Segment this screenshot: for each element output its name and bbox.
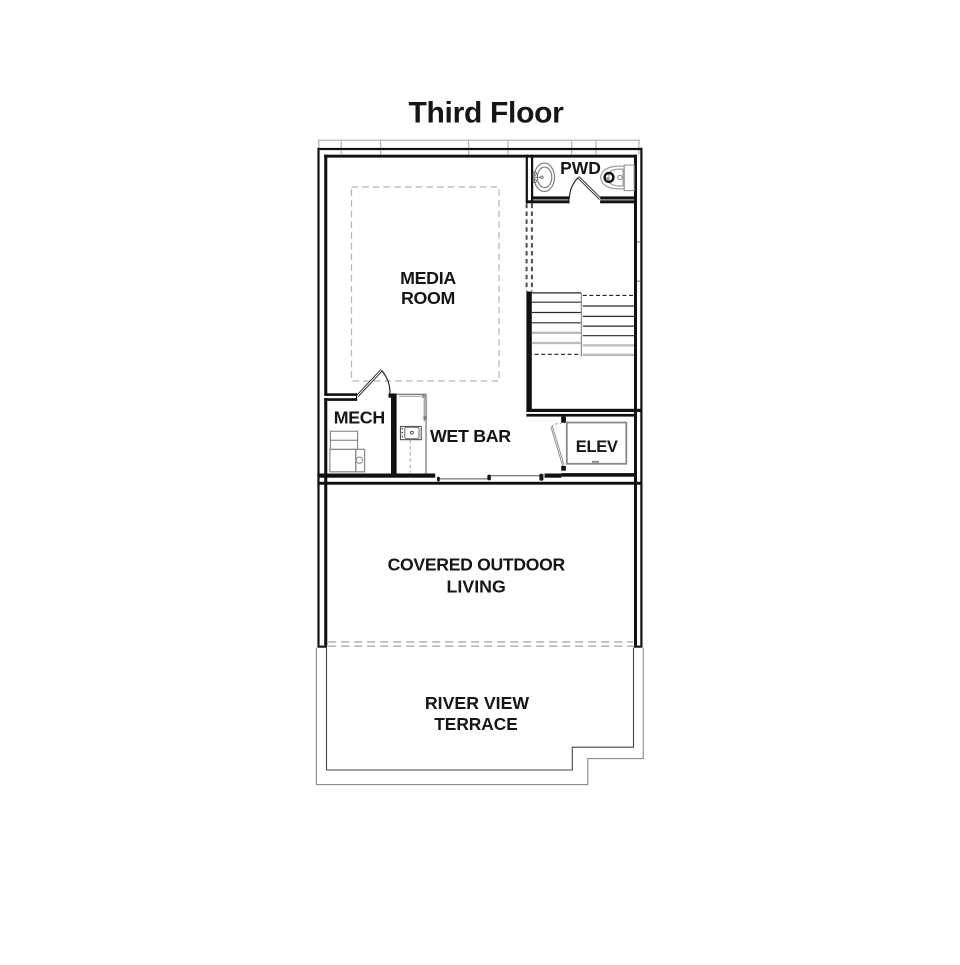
svg-text:MECH: MECH — [334, 407, 385, 427]
svg-text:MEDIA: MEDIA — [400, 268, 456, 288]
svg-text:COVERED OUTDOOR: COVERED OUTDOOR — [388, 554, 566, 574]
svg-text:WET BAR: WET BAR — [430, 426, 511, 446]
svg-text:PWD: PWD — [560, 158, 601, 178]
svg-text:LIVING: LIVING — [447, 576, 506, 596]
svg-text:Third Floor: Third Floor — [408, 97, 564, 130]
svg-text:ROOM: ROOM — [401, 288, 455, 308]
svg-text:RIVER VIEW: RIVER VIEW — [425, 693, 529, 713]
svg-text:TERRACE: TERRACE — [434, 714, 518, 734]
svg-text:ELEV: ELEV — [576, 438, 618, 456]
